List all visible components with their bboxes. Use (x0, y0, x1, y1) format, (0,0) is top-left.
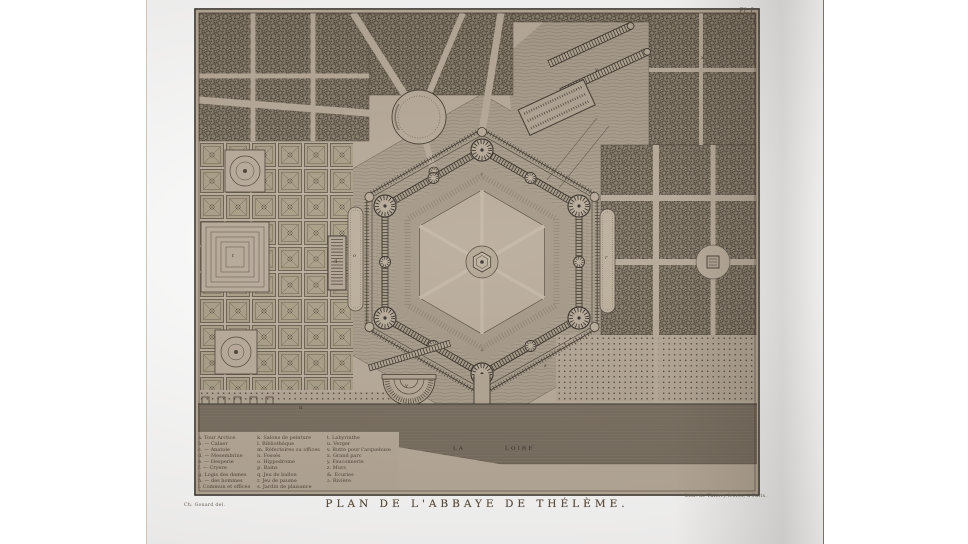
plan-mark: o (353, 253, 356, 259)
plan-mark: t (232, 253, 234, 259)
legend: a. Tour Arctice b. — Calaer c. — Anatole… (198, 435, 406, 490)
legend-column-3: t. Labyrinthe u. Verger v. Butte pour l'… (327, 435, 391, 490)
plate-title: PLAN DE L'ABBAYE DE THÉLÈME. (196, 498, 758, 510)
book-page: Pl. I. a. Tour Arctice b. — Calaer c. — … (146, 0, 824, 544)
credit-lithographer: Lith. de Thierry frères, à Paris. (685, 494, 767, 499)
legend-column-2: k. Salons de peinture l. Bibliothèque m.… (257, 435, 320, 490)
river-label-la: LA (453, 446, 465, 452)
legend-entry: s. Jardin de plaisance (257, 484, 320, 490)
river-label-loire: LOIRE (505, 446, 535, 452)
legend-entry: g. Logis des dames (198, 472, 250, 478)
credit-draughtsman: Ch. Gouard del. (184, 503, 225, 508)
plan-mark: v (405, 383, 408, 389)
plan-mark: x (701, 55, 704, 61)
plan-mark: r (605, 255, 607, 261)
plan-mark: u (299, 405, 302, 411)
legend-entry: i. Commun et offices (198, 484, 250, 490)
bosquet-clearing (696, 245, 730, 279)
legend-entry: h. — des hommes (198, 478, 250, 484)
plan-mark: q (334, 258, 337, 264)
photographed-book-plate: Pl. I. a. Tour Arctice b. — Calaer c. — … (0, 0, 968, 544)
legend-entry: ɔ. Rivière (327, 478, 391, 484)
legend-column-1: a. Tour Arctice b. — Calaer c. — Anatole… (198, 435, 250, 490)
plan-mark: y (595, 67, 598, 73)
plan-mark: s (544, 363, 547, 369)
plate-number: Pl. I. (739, 7, 755, 15)
central-fountain (466, 246, 498, 278)
